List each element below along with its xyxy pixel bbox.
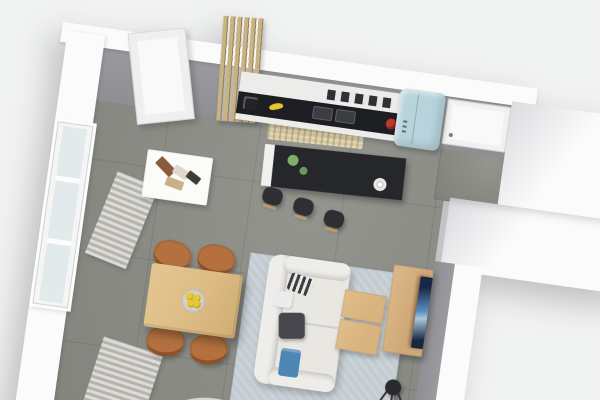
console-table: [141, 149, 213, 206]
coffee-machine: [242, 96, 258, 111]
refrigerator: [393, 88, 447, 152]
book: [185, 170, 201, 185]
sink-basin: [312, 106, 334, 122]
dining-chair: [189, 334, 228, 365]
green-fruit: [299, 167, 308, 176]
blue-throw: [278, 348, 302, 379]
sink-basin: [335, 109, 357, 125]
white-pillow: [273, 290, 293, 308]
floorplan-render: [0, 0, 600, 400]
open-door: [128, 27, 195, 125]
dark-pillow: [279, 313, 305, 339]
book: [155, 156, 176, 177]
banana: [269, 102, 284, 110]
apartment-plan: [0, 0, 600, 400]
door-handle-icon: [449, 133, 454, 138]
fridge-door-seam: [411, 94, 419, 144]
entry-door: [442, 98, 512, 152]
green-fruit: [287, 154, 299, 166]
fridge-handles: [402, 118, 408, 132]
lemon: [192, 300, 201, 309]
coffee-table: [341, 289, 387, 324]
